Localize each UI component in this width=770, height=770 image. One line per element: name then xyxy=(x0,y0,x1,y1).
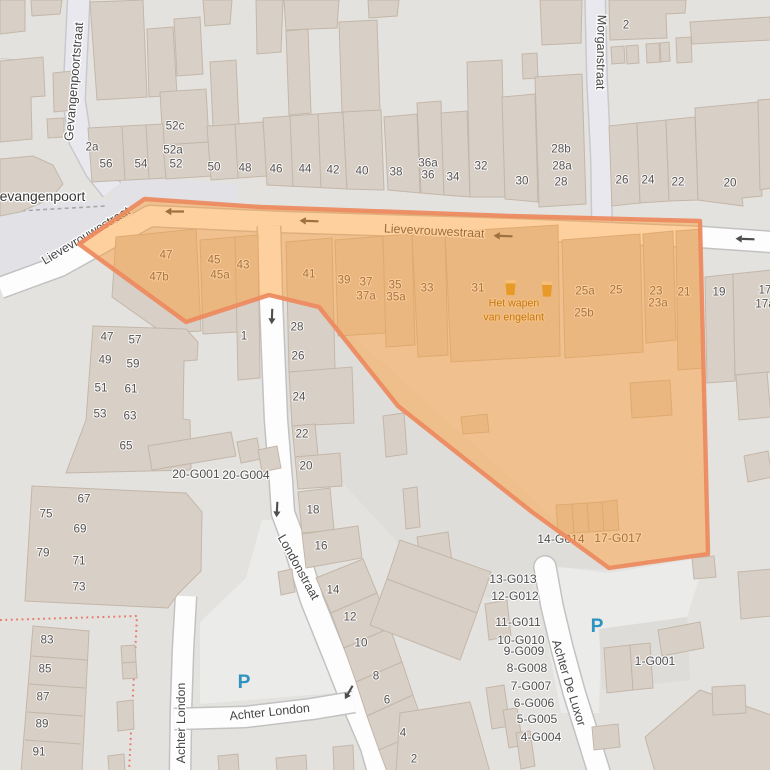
svg-text:71: 71 xyxy=(72,555,85,568)
svg-text:50: 50 xyxy=(207,161,221,174)
svg-text:51: 51 xyxy=(94,382,107,395)
svg-text:7-G007: 7-G007 xyxy=(511,679,552,693)
svg-text:24: 24 xyxy=(292,391,306,404)
svg-text:20-G001: 20-G001 xyxy=(172,467,220,481)
svg-text:20: 20 xyxy=(723,177,737,190)
svg-text:28a: 28a xyxy=(552,160,572,173)
svg-text:28b: 28b xyxy=(551,143,571,156)
svg-text:13-G013: 13-G013 xyxy=(489,572,537,586)
svg-text:85: 85 xyxy=(38,663,52,676)
svg-text:P: P xyxy=(591,616,604,637)
svg-text:20: 20 xyxy=(299,460,313,473)
svg-text:59: 59 xyxy=(126,358,139,371)
svg-text:12: 12 xyxy=(343,611,356,624)
svg-text:57: 57 xyxy=(128,334,141,347)
svg-text:67: 67 xyxy=(77,493,90,506)
svg-text:28: 28 xyxy=(290,321,303,334)
svg-text:40: 40 xyxy=(355,165,369,178)
svg-text:6-G006: 6-G006 xyxy=(514,696,555,710)
svg-text:Gevangenpoort: Gevangenpoort xyxy=(0,188,85,204)
svg-text:24: 24 xyxy=(641,174,655,187)
svg-text:P: P xyxy=(238,672,251,693)
svg-text:17: 17 xyxy=(758,284,770,297)
svg-text:89: 89 xyxy=(35,718,48,731)
svg-text:4-G004: 4-G004 xyxy=(521,730,562,744)
svg-text:1: 1 xyxy=(241,330,248,343)
svg-text:26: 26 xyxy=(615,174,628,187)
svg-text:Achter London: Achter London xyxy=(174,683,188,764)
svg-text:19: 19 xyxy=(712,286,725,299)
svg-text:34: 34 xyxy=(446,171,460,184)
svg-text:16: 16 xyxy=(314,540,327,553)
svg-text:69: 69 xyxy=(73,523,86,536)
svg-text:63: 63 xyxy=(123,410,136,423)
svg-text:91: 91 xyxy=(32,746,45,759)
svg-text:12-G012: 12-G012 xyxy=(491,589,539,603)
svg-text:87: 87 xyxy=(36,691,49,704)
svg-text:65: 65 xyxy=(119,440,133,453)
svg-text:79: 79 xyxy=(36,547,49,560)
svg-text:28: 28 xyxy=(554,176,567,189)
svg-text:1-G001: 1-G001 xyxy=(635,654,676,668)
svg-text:53: 53 xyxy=(93,408,106,421)
svg-text:14: 14 xyxy=(326,584,340,597)
svg-text:47: 47 xyxy=(100,331,113,344)
svg-text:11-G011: 11-G011 xyxy=(495,615,541,629)
svg-text:20-G004: 20-G004 xyxy=(222,468,270,482)
svg-text:10: 10 xyxy=(354,637,368,650)
svg-text:49: 49 xyxy=(98,354,111,367)
svg-text:42: 42 xyxy=(326,164,339,177)
svg-text:52: 52 xyxy=(169,158,182,171)
svg-text:32: 32 xyxy=(474,160,487,173)
svg-text:2: 2 xyxy=(411,753,418,766)
svg-text:18: 18 xyxy=(306,504,319,517)
svg-text:75: 75 xyxy=(39,508,53,521)
svg-text:38: 38 xyxy=(389,166,402,179)
svg-text:83: 83 xyxy=(40,634,53,647)
svg-text:73: 73 xyxy=(72,581,85,594)
svg-text:17a: 17a xyxy=(755,298,770,311)
svg-text:8: 8 xyxy=(373,670,380,683)
svg-text:52c: 52c xyxy=(166,120,185,133)
svg-text:4: 4 xyxy=(400,727,407,740)
svg-text:9-G009: 9-G009 xyxy=(504,644,545,658)
svg-text:52a: 52a xyxy=(163,144,183,157)
svg-text:46: 46 xyxy=(269,163,282,176)
svg-text:2: 2 xyxy=(623,19,630,32)
svg-text:Morganstraat: Morganstraat xyxy=(593,15,608,90)
svg-text:5-G005: 5-G005 xyxy=(517,712,558,726)
svg-text:61: 61 xyxy=(124,383,137,396)
svg-text:48: 48 xyxy=(238,162,251,175)
svg-text:8-G008: 8-G008 xyxy=(507,661,548,675)
svg-text:36: 36 xyxy=(421,169,434,182)
svg-text:6: 6 xyxy=(384,694,391,707)
svg-text:30: 30 xyxy=(515,175,529,188)
svg-text:2a: 2a xyxy=(85,141,99,154)
svg-text:54: 54 xyxy=(134,158,148,171)
svg-text:44: 44 xyxy=(298,163,312,176)
svg-text:26: 26 xyxy=(291,350,304,363)
svg-text:22: 22 xyxy=(295,428,308,441)
svg-text:56: 56 xyxy=(99,158,112,171)
svg-text:22: 22 xyxy=(671,176,684,189)
